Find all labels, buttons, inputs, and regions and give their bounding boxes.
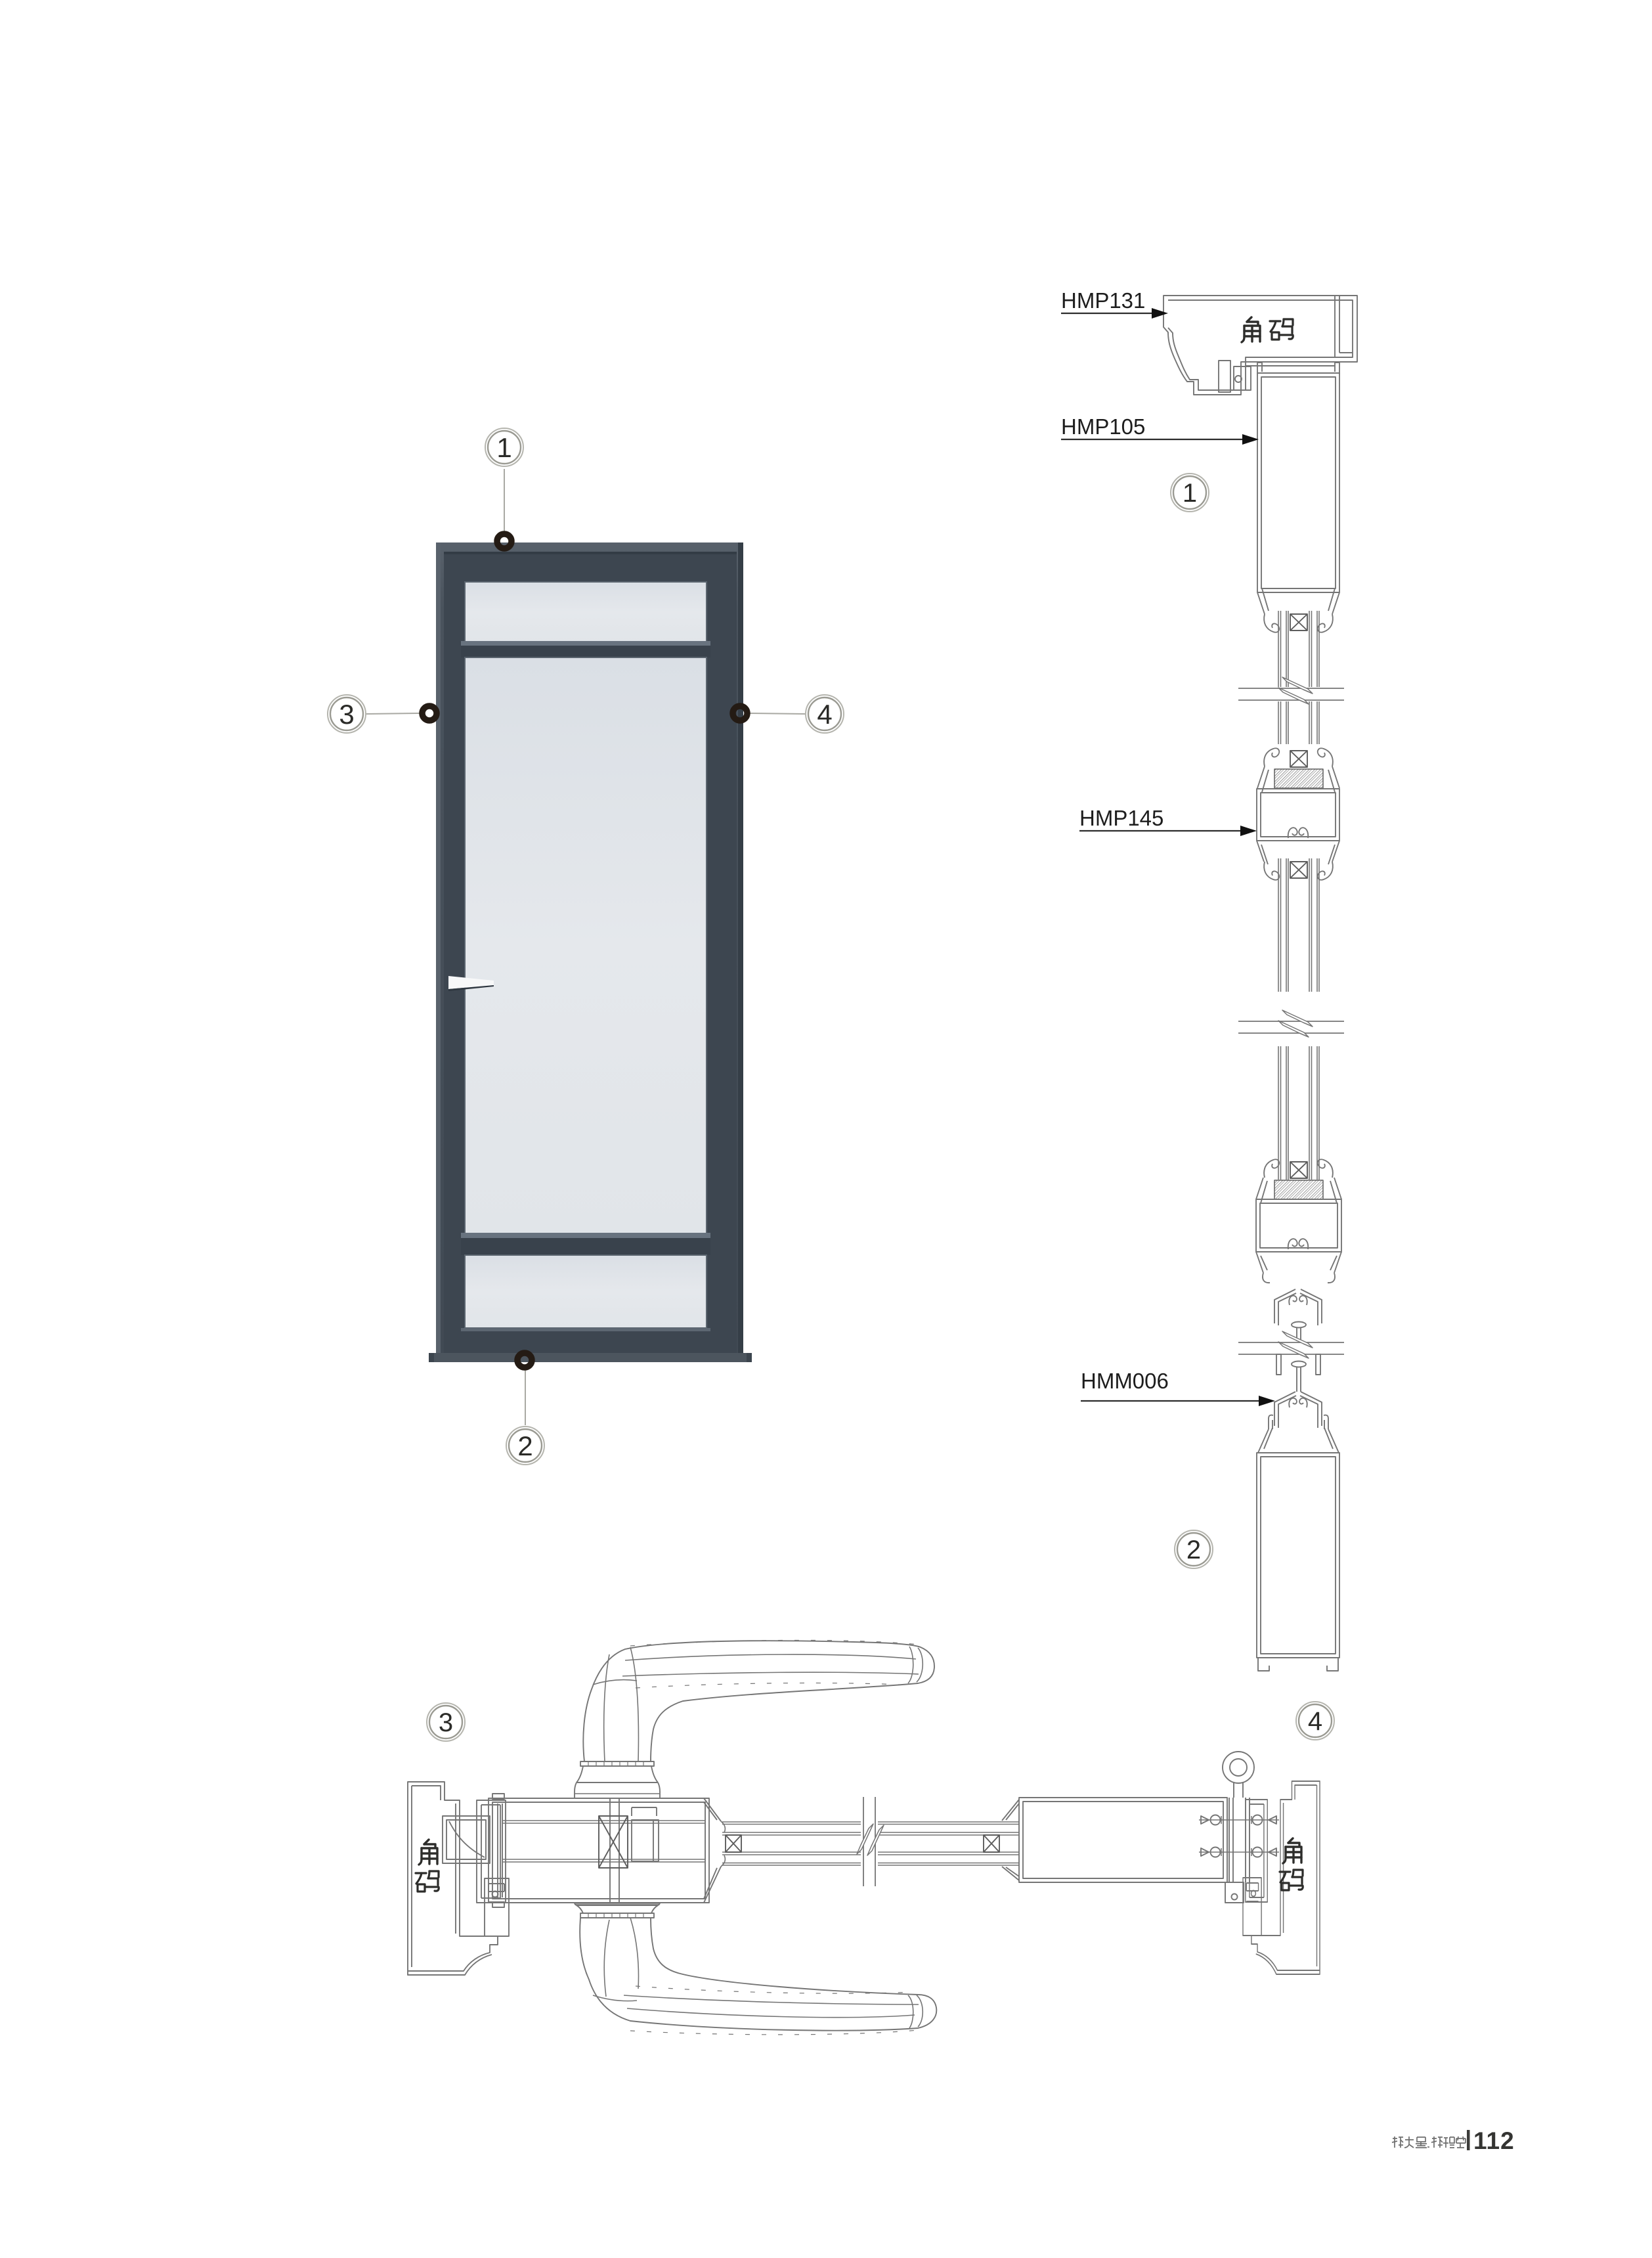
svg-text:112: 112	[1473, 2127, 1515, 2154]
svg-text:HMP131: HMP131	[1061, 288, 1145, 313]
svg-text:3: 3	[439, 1708, 453, 1737]
svg-text:3: 3	[339, 699, 354, 730]
svg-text:1: 1	[1183, 479, 1197, 508]
svg-text:HMM006: HMM006	[1081, 1369, 1169, 1393]
svg-text:1: 1	[496, 432, 511, 463]
svg-text:HMP105: HMP105	[1061, 414, 1145, 439]
svg-text:4: 4	[817, 699, 832, 730]
svg-text:HMP145: HMP145	[1079, 806, 1163, 830]
svg-text:2: 2	[517, 1430, 533, 1461]
svg-text:4: 4	[1308, 1707, 1322, 1736]
svg-text:2: 2	[1186, 1536, 1201, 1564]
